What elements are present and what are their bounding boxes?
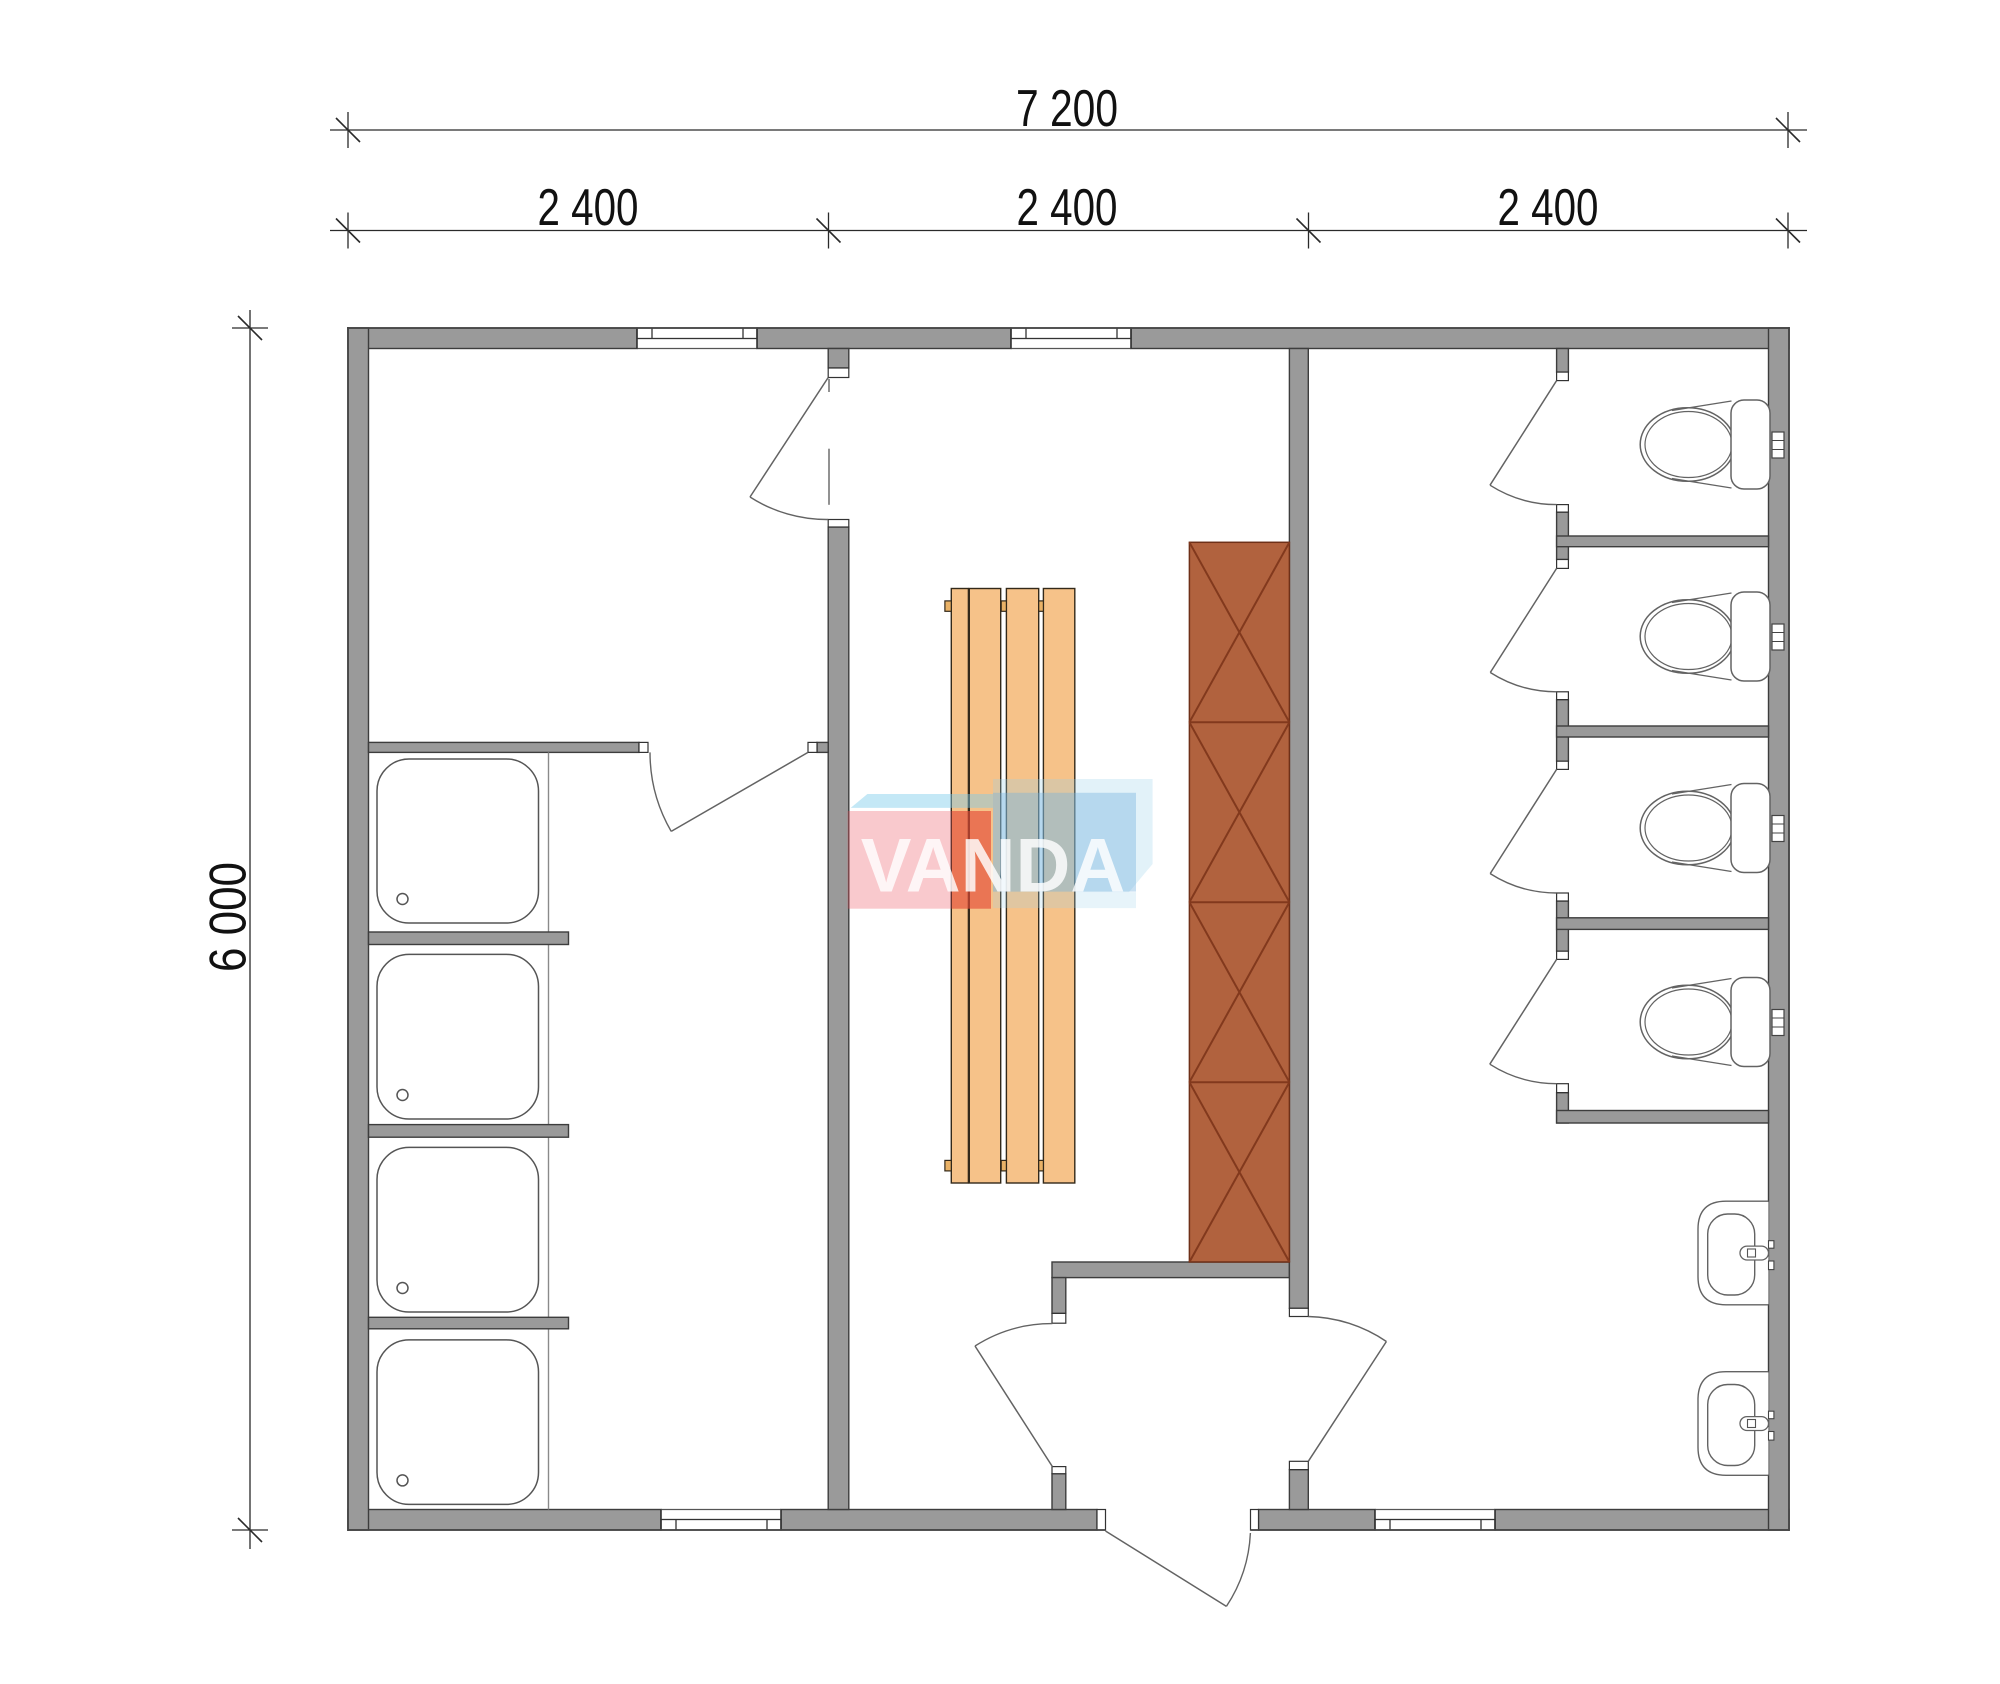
svg-text:2 400: 2 400 xyxy=(538,179,639,237)
svg-text:7 200: 7 200 xyxy=(1016,80,1118,138)
svg-text:6 000: 6 000 xyxy=(200,862,258,972)
svg-text:2 400: 2 400 xyxy=(1017,179,1118,237)
svg-text:VANDA: VANDA xyxy=(861,824,1126,909)
svg-text:2 400: 2 400 xyxy=(1498,179,1599,237)
